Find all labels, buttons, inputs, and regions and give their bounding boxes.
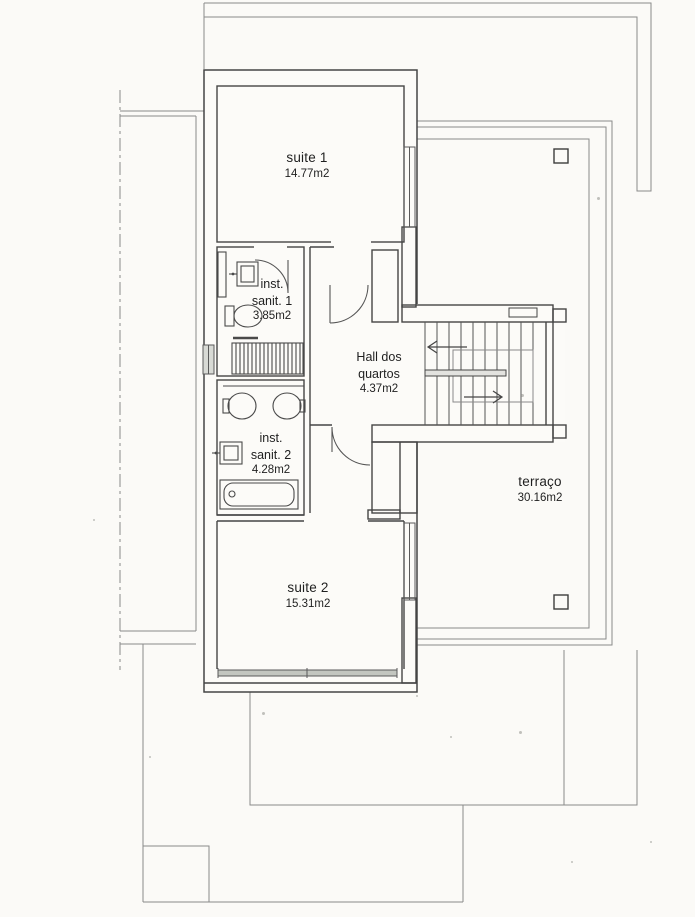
room-name: suite 1 [285, 149, 330, 167]
room-name: terraço [518, 473, 563, 491]
room-area: 15.31m2 [286, 597, 331, 612]
room-area: 3.85m2 [252, 309, 292, 324]
room-label-suite1: suite 1 14.77m2 [285, 149, 330, 182]
room-label-sanit2: inst. sanit. 2 4.28m2 [251, 430, 291, 478]
room-label-hall: Hall dos quartos 4.37m2 [356, 349, 401, 397]
room-area: 30.16m2 [518, 491, 563, 506]
room-area: 4.37m2 [356, 382, 401, 397]
scan-speck [519, 731, 522, 734]
terrace-column-icon [554, 595, 568, 609]
room-label-suite2: suite 2 15.31m2 [286, 579, 331, 612]
scan-speck [597, 197, 600, 200]
scan-speck [571, 861, 573, 863]
suite2-south-window [218, 668, 397, 678]
room-name: quartos [356, 366, 401, 383]
room-name: Hall dos [356, 349, 401, 366]
scan-speck [93, 519, 95, 521]
sanit1-door-opening [254, 246, 287, 249]
room-name: suite 2 [286, 579, 331, 597]
room-name: sanit. 2 [251, 447, 291, 464]
room-name: inst. [251, 430, 291, 447]
scan-speck [416, 695, 418, 697]
room-name: inst. [252, 276, 292, 293]
floor-plan-page: suite 1 14.77m2 inst. sanit. 1 3.85m2 Ha… [0, 0, 695, 917]
suite1-door-opening [331, 241, 371, 244]
scan-speck [650, 841, 652, 843]
room-name: sanit. 1 [252, 293, 292, 310]
bathroom-window [203, 345, 214, 374]
scan-speck [450, 736, 452, 738]
terrace-column-icon [554, 149, 568, 163]
stair-handrail [425, 370, 506, 376]
scan-speck [262, 712, 265, 715]
room-label-sanit1: inst. sanit. 1 3.85m2 [252, 276, 292, 324]
scan-speck [149, 756, 151, 758]
room-label-terraco: terraço 30.16m2 [518, 473, 563, 506]
scan-speck [521, 394, 524, 397]
room-area: 4.28m2 [251, 463, 291, 478]
room-area: 14.77m2 [285, 167, 330, 182]
floor-plan-drawing [0, 0, 695, 917]
